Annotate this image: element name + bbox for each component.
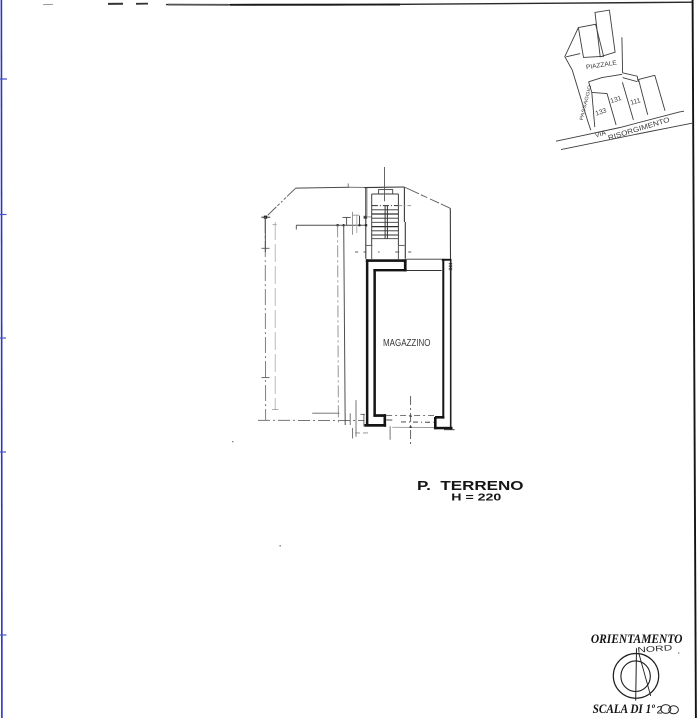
svg-text:133: 133	[595, 107, 608, 117]
svg-text:H = 220: H = 220	[451, 492, 501, 503]
svg-text:131: 131	[610, 95, 623, 105]
svg-text:111: 111	[630, 97, 642, 106]
svg-text:SCALA DI 1º: SCALA DI 1º	[593, 702, 656, 716]
svg-text:PIAZZALE: PIAZZALE	[586, 60, 618, 72]
svg-text:MAGAZZINO: MAGAZZINO	[383, 338, 431, 349]
svg-text:P. TERRENO: P. TERRENO	[417, 479, 524, 493]
svg-text:NORD: NORD	[637, 643, 673, 654]
